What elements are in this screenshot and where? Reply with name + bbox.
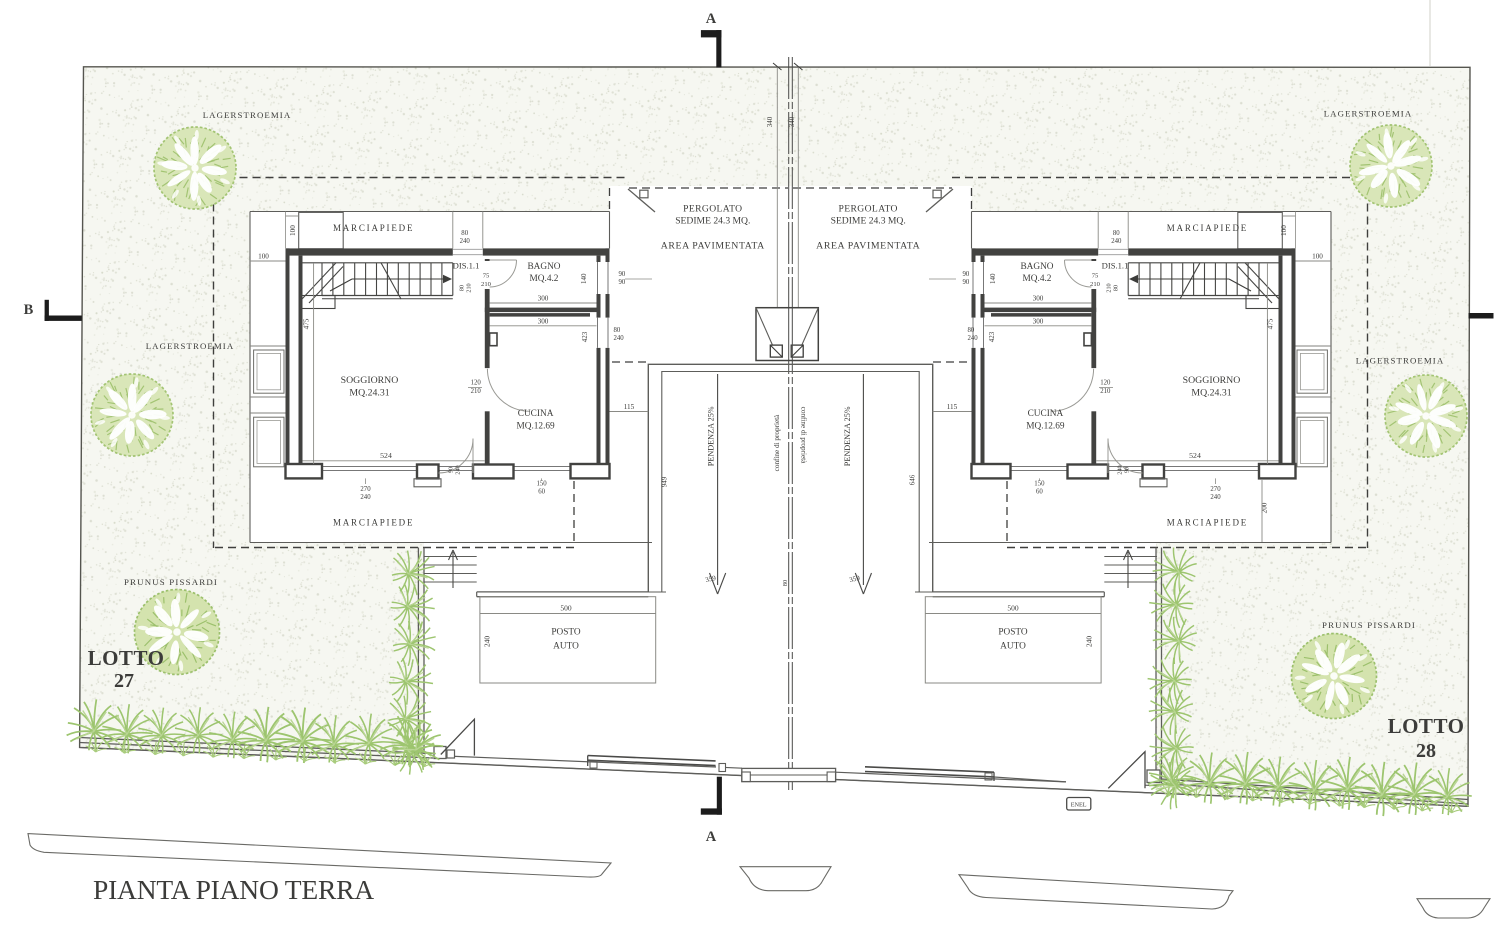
svg-text:475: 475 <box>303 318 311 329</box>
svg-text:POSTO: POSTO <box>551 628 581 638</box>
svg-text:CUCINA: CUCINA <box>1028 409 1064 419</box>
svg-text:270: 270 <box>360 486 371 493</box>
svg-text:120: 120 <box>1100 380 1111 387</box>
svg-text:300: 300 <box>538 295 549 303</box>
svg-text:27: 27 <box>114 670 134 692</box>
svg-text:646: 646 <box>909 474 917 485</box>
svg-text:PERGOLATO: PERGOLATO <box>683 204 742 215</box>
svg-text:80: 80 <box>1113 230 1120 237</box>
svg-text:150: 150 <box>1034 481 1045 488</box>
svg-text:AREA PAVIMENTATA: AREA PAVIMENTATA <box>661 240 765 251</box>
svg-text:60: 60 <box>1036 489 1043 496</box>
svg-text:BAGNO: BAGNO <box>1020 262 1053 272</box>
svg-text:PERGOLATO: PERGOLATO <box>838 204 897 215</box>
svg-text:90: 90 <box>619 271 626 278</box>
svg-text:300: 300 <box>538 317 549 325</box>
svg-text:240: 240 <box>1117 465 1124 474</box>
svg-text:210: 210 <box>466 283 473 292</box>
svg-text:80: 80 <box>461 230 468 237</box>
svg-text:80: 80 <box>1113 285 1120 291</box>
svg-text:BAGNO: BAGNO <box>527 262 560 272</box>
svg-text:75: 75 <box>1092 273 1099 280</box>
svg-text:AUTO: AUTO <box>553 642 579 652</box>
svg-text:90: 90 <box>448 467 455 473</box>
svg-text:SOGGIORNO: SOGGIORNO <box>341 375 399 386</box>
svg-text:LOTTO: LOTTO <box>1388 714 1465 738</box>
svg-text:210: 210 <box>471 388 482 395</box>
svg-text:90: 90 <box>963 279 970 286</box>
svg-text:270: 270 <box>1210 486 1221 493</box>
svg-text:POSTO: POSTO <box>998 628 1028 638</box>
svg-text:524: 524 <box>380 451 392 460</box>
svg-text:CUCINA: CUCINA <box>518 409 554 419</box>
svg-text:240: 240 <box>460 238 471 245</box>
svg-text:210: 210 <box>1100 388 1111 395</box>
svg-text:240: 240 <box>614 335 625 342</box>
svg-text:LAGERSTROEMIA: LAGERSTROEMIA <box>146 341 235 351</box>
svg-text:SEDIME 24.3 MQ.: SEDIME 24.3 MQ. <box>831 216 906 227</box>
svg-text:100: 100 <box>289 225 297 236</box>
svg-text:PENDENZA 25%: PENDENZA 25% <box>843 406 852 466</box>
svg-text:confine di proprietà: confine di proprietà <box>773 414 781 471</box>
svg-text:PENDENZA 25%: PENDENZA 25% <box>707 406 716 466</box>
svg-text:500: 500 <box>560 604 572 613</box>
svg-text:60: 60 <box>538 489 545 496</box>
svg-text:100: 100 <box>1312 253 1323 261</box>
svg-text:LAGERSTROEMIA: LAGERSTROEMIA <box>1356 356 1445 366</box>
svg-text:120: 120 <box>471 380 482 387</box>
svg-text:MARCIAPIEDE: MARCIAPIEDE <box>333 223 414 233</box>
svg-text:500: 500 <box>1007 604 1019 613</box>
svg-text:240: 240 <box>968 335 979 342</box>
svg-text:949: 949 <box>661 476 669 487</box>
svg-text:AUTO: AUTO <box>1000 642 1026 652</box>
svg-text:A: A <box>706 11 717 27</box>
svg-text:140: 140 <box>989 273 997 284</box>
svg-text:MQ.24.31: MQ.24.31 <box>349 388 389 399</box>
svg-text:100: 100 <box>1280 225 1288 236</box>
svg-text:PIANTA PIANO TERRA: PIANTA PIANO TERRA <box>93 874 374 905</box>
svg-text:confine di proprietà: confine di proprietà <box>800 407 808 464</box>
svg-text:MARCIAPIEDE: MARCIAPIEDE <box>1167 223 1248 233</box>
svg-text:MQ.12.69: MQ.12.69 <box>516 422 555 432</box>
svg-text:240: 240 <box>1085 636 1094 648</box>
svg-text:MQ.12.69: MQ.12.69 <box>1026 422 1065 432</box>
svg-text:LAGERSTROEMIA: LAGERSTROEMIA <box>203 110 292 120</box>
svg-text:115: 115 <box>624 403 635 411</box>
svg-text:240: 240 <box>1210 494 1221 501</box>
svg-text:DIS.1.1: DIS.1.1 <box>1102 261 1129 271</box>
svg-text:115: 115 <box>947 403 958 411</box>
svg-text:DIS.1.1: DIS.1.1 <box>453 261 480 271</box>
svg-text:MARCIAPIEDE: MARCIAPIEDE <box>333 518 414 528</box>
svg-text:LAGERSTROEMIA: LAGERSTROEMIA <box>1324 109 1413 119</box>
svg-text:MARCIAPIEDE: MARCIAPIEDE <box>1167 518 1248 528</box>
svg-text:100: 100 <box>258 253 269 261</box>
svg-text:75: 75 <box>483 273 490 280</box>
svg-text:150: 150 <box>536 481 547 488</box>
svg-text:PRUNUS PISSARDI: PRUNUS PISSARDI <box>1322 620 1416 630</box>
svg-text:SOGGIORNO: SOGGIORNO <box>1183 375 1241 386</box>
svg-text:340: 340 <box>766 116 774 127</box>
svg-text:475: 475 <box>1267 318 1275 329</box>
svg-text:MQ.24.31: MQ.24.31 <box>1191 388 1231 399</box>
svg-text:ENEL: ENEL <box>1071 802 1087 809</box>
svg-text:340: 340 <box>788 116 796 127</box>
svg-text:SEDIME 24.3 MQ.: SEDIME 24.3 MQ. <box>675 216 750 227</box>
svg-text:240: 240 <box>1111 238 1122 245</box>
svg-text:80: 80 <box>968 327 975 334</box>
svg-text:240: 240 <box>455 465 462 474</box>
svg-text:PRUNUS PISSARDI: PRUNUS PISSARDI <box>124 577 218 587</box>
svg-text:MQ.4.2: MQ.4.2 <box>1023 274 1052 284</box>
svg-text:240: 240 <box>483 636 492 648</box>
svg-text:AREA PAVIMENTATA: AREA PAVIMENTATA <box>816 240 920 251</box>
svg-text:210: 210 <box>1090 281 1101 288</box>
svg-text:MQ.4.2: MQ.4.2 <box>530 274 559 284</box>
svg-text:LOTTO: LOTTO <box>88 646 165 670</box>
svg-text:300: 300 <box>1033 317 1044 325</box>
svg-text:210: 210 <box>1106 283 1113 292</box>
svg-text:423: 423 <box>988 331 996 342</box>
svg-text:90: 90 <box>1124 467 1131 473</box>
svg-text:300: 300 <box>1033 295 1044 303</box>
svg-text:A: A <box>706 829 717 845</box>
svg-text:423: 423 <box>581 331 589 342</box>
svg-text:140: 140 <box>580 273 588 284</box>
svg-text:28: 28 <box>1416 740 1436 762</box>
svg-text:80: 80 <box>614 327 621 334</box>
svg-text:240: 240 <box>360 494 371 501</box>
svg-text:90: 90 <box>963 271 970 278</box>
svg-text:80: 80 <box>459 285 466 291</box>
svg-text:90: 90 <box>619 279 626 286</box>
svg-text:524: 524 <box>1189 451 1201 460</box>
svg-text:B: B <box>24 302 34 318</box>
svg-text:80: 80 <box>782 580 789 587</box>
